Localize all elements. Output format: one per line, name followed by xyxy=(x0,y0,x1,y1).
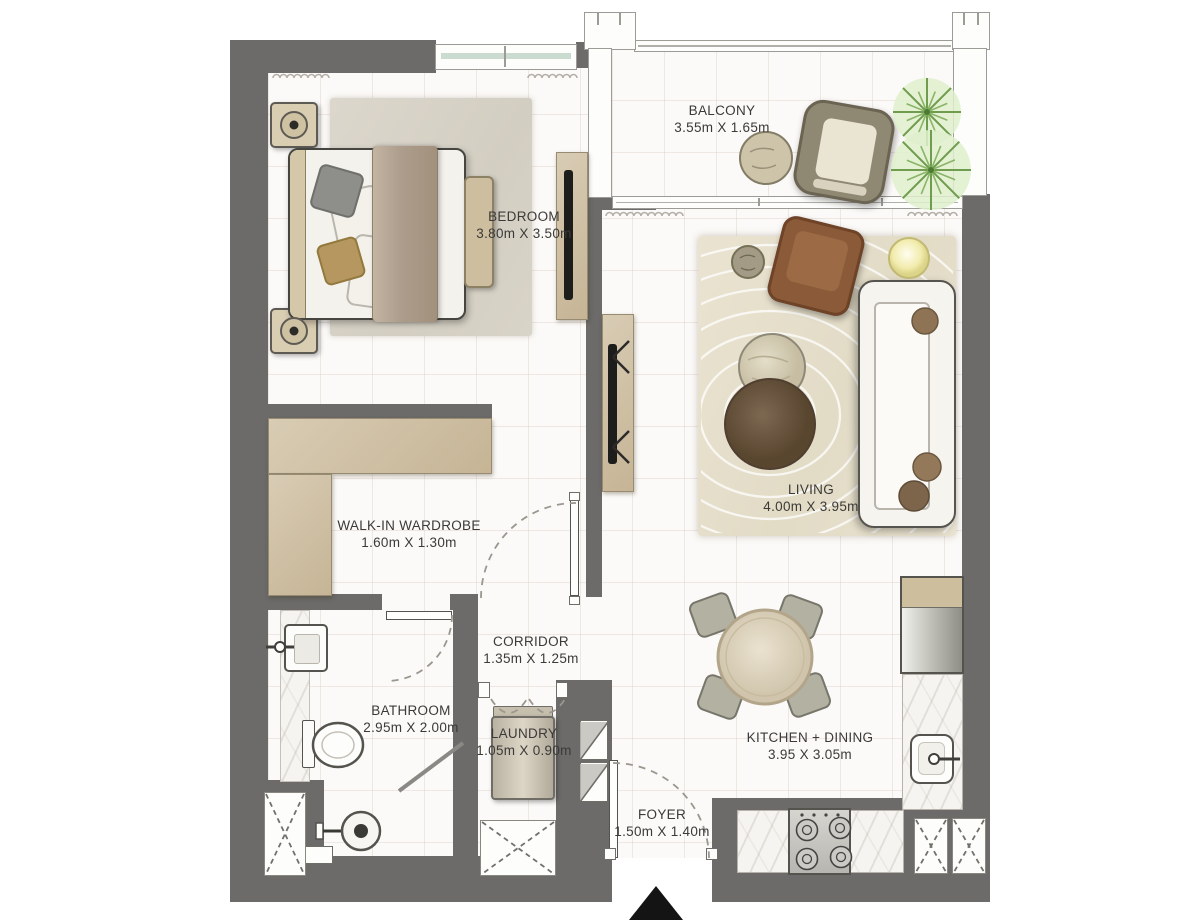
wall-top-left xyxy=(230,40,436,73)
room-dims: 1.60m X 1.30m xyxy=(337,534,480,551)
slider-split xyxy=(758,198,760,206)
room-name: LAUNDRY xyxy=(476,725,571,742)
service-shaft xyxy=(914,818,948,874)
nightstand-top xyxy=(270,102,318,148)
shelf-cell xyxy=(580,762,608,802)
window-glass xyxy=(441,53,571,59)
room-name: WALK-IN WARDROBE xyxy=(337,517,480,534)
balcony-pier-right xyxy=(952,12,990,50)
room-dims: 3.55m X 1.65m xyxy=(674,119,769,136)
room-name: KITCHEN + DINING xyxy=(747,729,874,746)
wall-bathroom-top-a xyxy=(268,594,382,610)
living-tv-panel xyxy=(602,314,634,492)
balcony-sliding-door xyxy=(612,196,963,209)
bed-headboard xyxy=(290,150,306,318)
room-dims: 4.00m X 3.95m xyxy=(763,498,858,515)
pier-notch xyxy=(963,13,965,25)
room-dims: 1.35m X 1.25m xyxy=(483,650,578,667)
bed-blanket xyxy=(372,146,438,322)
room-name: BEDROOM xyxy=(476,208,571,225)
wall-left xyxy=(230,40,268,902)
service-shaft xyxy=(264,792,306,876)
room-label-bathroom: BATHROOM 2.95m X 2.00m xyxy=(363,702,458,736)
balcony-pier-left xyxy=(584,12,636,50)
room-dims: 3.95 X 3.05m xyxy=(747,746,874,763)
balcony-floor xyxy=(612,48,962,196)
wardrobe-unit-horizontal xyxy=(268,418,492,474)
door-jamb xyxy=(569,596,580,605)
wall-bedroom-living-divider xyxy=(586,203,602,597)
slider-line xyxy=(616,202,958,204)
room-dims: 1.50m X 1.40m xyxy=(614,823,709,840)
wall-right xyxy=(962,194,990,860)
room-name: LIVING xyxy=(763,481,858,498)
kitchen-sink xyxy=(910,734,954,784)
balcony-side-left xyxy=(588,48,612,198)
bedroom-window xyxy=(435,44,577,70)
pier-notch xyxy=(619,13,621,25)
room-dims: 1.05m X 0.90m xyxy=(476,742,571,759)
balcony-side-right xyxy=(953,48,987,196)
armchair-seat xyxy=(785,229,850,293)
wardrobe-unit-vertical xyxy=(268,474,332,596)
room-label-balcony: BALCONY 3.55m X 1.65m xyxy=(674,102,769,136)
fridge-cabinet-top xyxy=(902,578,962,608)
room-label-kitchen: KITCHEN + DINING 3.95 X 3.05m xyxy=(747,729,874,763)
service-shaft xyxy=(480,820,556,876)
door-jamb xyxy=(569,492,580,501)
wardrobe-door-leaf xyxy=(570,500,579,596)
room-name: CORRIDOR xyxy=(483,633,578,650)
wall-wardrobe-band xyxy=(268,404,492,418)
pier-notch xyxy=(597,13,599,25)
slider-split xyxy=(881,198,883,206)
toilet-tank xyxy=(302,720,315,768)
lounge-seat xyxy=(814,117,878,185)
fridge xyxy=(900,576,964,674)
room-name: FOYER xyxy=(614,806,709,823)
floor-plan: BALCONY 3.55m X 1.65m BEDROOM 3.80m X 3.… xyxy=(0,0,1200,923)
living-tv xyxy=(608,344,617,464)
bathroom-sink xyxy=(284,624,328,672)
room-label-bedroom: BEDROOM 3.80m X 3.50m xyxy=(476,208,571,242)
room-label-foyer: FOYER 1.50m X 1.40m xyxy=(614,806,709,840)
door-jamb xyxy=(478,682,490,698)
bathroom-door-leaf xyxy=(386,611,452,620)
room-name: BATHROOM xyxy=(363,702,458,719)
door-jamb xyxy=(706,848,718,860)
sink-basin xyxy=(918,742,945,775)
room-label-laundry: LAUNDRY 1.05m X 0.90m xyxy=(476,725,571,759)
railing-line xyxy=(638,45,951,47)
room-label-corridor: CORRIDOR 1.35m X 1.25m xyxy=(483,633,578,667)
window-mullion xyxy=(504,46,506,67)
room-name: BALCONY xyxy=(674,102,769,119)
room-label-wardrobe: WALK-IN WARDROBE 1.60m X 1.30m xyxy=(337,517,480,551)
sink-basin xyxy=(294,634,320,664)
entrance-marker xyxy=(629,886,683,920)
service-shaft xyxy=(952,818,986,874)
stove xyxy=(788,808,851,875)
room-dims: 2.95m X 2.00m xyxy=(363,719,458,736)
shelf-cell xyxy=(580,720,608,760)
pier-notch xyxy=(977,13,979,25)
room-dims: 3.80m X 3.50m xyxy=(476,225,571,242)
room-label-living: LIVING 4.00m X 3.95m xyxy=(763,481,858,515)
sofa xyxy=(858,280,956,528)
shower-step xyxy=(305,846,333,864)
door-jamb xyxy=(604,848,616,860)
door-jamb xyxy=(556,682,568,698)
sofa-seat xyxy=(874,302,930,510)
balcony-lounge-chair xyxy=(790,97,897,208)
balcony-railing-top xyxy=(634,40,956,52)
